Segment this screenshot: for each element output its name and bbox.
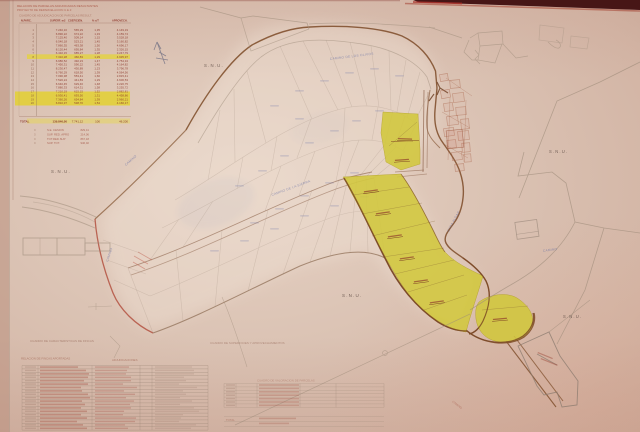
svg-text:TOTAL: TOTAL: [226, 418, 235, 422]
svg-text:CUADRO DE VALORACION DE PARCEL: CUADRO DE VALORACION DE PARCELAS: [257, 379, 315, 383]
svg-text:D: D: [34, 137, 36, 141]
svg-text:829,41: 829,41: [80, 128, 89, 132]
svg-text:% s/T: % s/T: [92, 19, 99, 23]
svg-text:D: D: [34, 128, 36, 132]
svg-text:CUADRO DE SUPERFICIES Y APROVE: CUADRO DE SUPERFICIES Y APROVECHAMIENTOS: [210, 341, 285, 345]
svg-text:CUADRO DE CARACTERISTICAS DE F: CUADRO DE CARACTERISTICAS DE FINCAS: [30, 339, 94, 343]
svg-text:139.846,00: 139.846,00: [53, 120, 68, 124]
svg-text:20: 20: [31, 101, 35, 105]
svg-text:SUPERF. m2: SUPERF. m2: [50, 19, 66, 23]
svg-text:N.PARC.: N.PARC.: [21, 19, 32, 23]
svg-text:PROYECTO DE REPARCELACION U.E.: PROYECTO DE REPARCELACION U.E.3: [17, 8, 72, 12]
svg-text:S.E. CESION: S.E. CESION: [47, 128, 64, 132]
svg-text:COEFICIEN.: COEFICIEN.: [68, 19, 83, 23]
svg-text:6.810,37: 6.810,37: [56, 101, 68, 105]
svg-text:538,70: 538,70: [74, 101, 83, 105]
svg-text:SUP. TOT.: SUP. TOT.: [47, 141, 60, 145]
svg-text:S.N.U.: S.N.U.: [342, 293, 362, 298]
svg-text:TOTAL: TOTAL: [20, 120, 30, 124]
svg-text:S.N.U.: S.N.U.: [549, 149, 568, 154]
svg-text:S.N.U.: S.N.U.: [51, 169, 71, 174]
svg-text:867,18: 867,18: [80, 137, 89, 141]
svg-text:S.N.U.: S.N.U.: [204, 63, 224, 68]
svg-text:TOT.RED.SUP: TOT.RED.SUP: [47, 137, 66, 141]
svg-text:S.N.U.: S.N.U.: [563, 314, 582, 319]
svg-text:D: D: [34, 141, 36, 145]
svg-text:100: 100: [95, 120, 100, 124]
svg-text:946,02: 946,02: [80, 141, 89, 145]
svg-text:4.166,17: 4.166,17: [117, 101, 129, 105]
svg-text:CUADRO DE ADJUDICACION DE PARC: CUADRO DE ADJUDICACION DE PARCELAS RESUL…: [19, 14, 92, 18]
svg-text:46.200: 46.200: [119, 120, 128, 124]
svg-text:214,06: 214,06: [80, 132, 89, 136]
svg-text:SUP. RED. APRO: SUP. RED. APRO: [47, 132, 70, 136]
svg-text:7.741,12: 7.741,12: [72, 120, 84, 124]
svg-text:APROVECH.: APROVECH.: [112, 19, 128, 23]
svg-text:D: D: [34, 132, 36, 136]
svg-text:ADJUDICACIONES: ADJUDICACIONES: [112, 358, 138, 362]
svg-text:RELACION DE FINCAS APORTADAS: RELACION DE FINCAS APORTADAS: [21, 357, 70, 361]
svg-text:1,54: 1,54: [94, 101, 100, 105]
